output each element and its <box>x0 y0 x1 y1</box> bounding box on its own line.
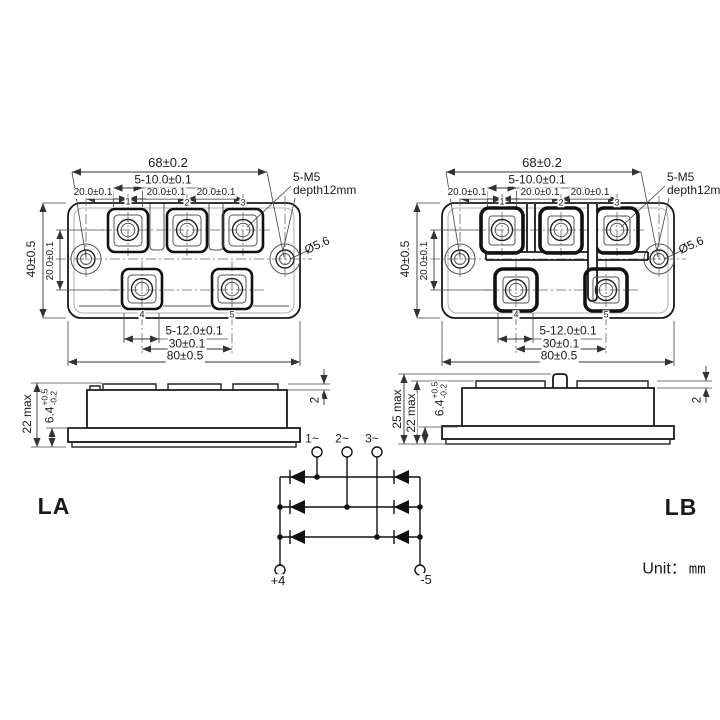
unit-prefix: Unit： <box>642 562 686 579</box>
circuit-ac3-label: 3~ <box>364 433 380 446</box>
circuit-ac1-label: 1~ <box>304 433 320 446</box>
lb-side-height-max: 22 max <box>405 392 417 433</box>
la-side-view <box>31 369 330 447</box>
variant-label-lb: LB <box>664 495 699 519</box>
lb-terminal-number-5: 5 <box>602 310 609 319</box>
circuit-ac2-label: 2~ <box>334 433 350 446</box>
lb-terminal-number-3: 3 <box>613 198 620 207</box>
lb-base-tol-minus: -0.2 <box>439 382 448 399</box>
lb-dim-bottom-terminal-width: 5-12.0±0.1 <box>538 325 597 338</box>
variant-label-la: LA <box>37 494 72 518</box>
la-dim-row-pitch: 20.0±0.1 <box>46 241 56 282</box>
module-outline-drawing: 68±0.2 5-10.0±0.1 20.0±0.1 20.0±0.1 20.0… <box>0 0 720 720</box>
lb-terminal-number-1: 1 <box>498 197 505 206</box>
lb-dim-height-overall: 40±0.5 <box>399 240 411 279</box>
lb-dim-hole-span: 68±0.2 <box>521 156 563 170</box>
lb-terminal-number-2: 2 <box>557 198 564 207</box>
la-dim-terminal-hole-width: 5-10.0±0.1 <box>133 174 192 187</box>
lb-dim-width-overall: 80±0.5 <box>540 350 579 363</box>
la-base-value: 6.4 <box>43 407 55 424</box>
lb-base-value: 6.4 <box>433 400 445 417</box>
la-side-base-thickness: 6.4 +0.5 -0.2 <box>41 388 58 424</box>
lb-thread-depth: depth12mm <box>667 184 720 198</box>
unit-label: Unit： mm <box>641 562 706 579</box>
la-terminal-number-4: 4 <box>138 310 145 319</box>
lb-dim-terminal-hole-width: 5-10.0±0.1 <box>507 174 566 187</box>
drawing-linework <box>0 0 720 720</box>
unit-value: mm <box>689 563 706 578</box>
lb-side-overall-height-max: 25 max <box>391 388 403 429</box>
la-side-height-max: 22 max <box>21 393 33 434</box>
ac1-terminal-circle <box>312 447 322 457</box>
la-dim-hole-span: 68±0.2 <box>147 156 189 170</box>
lb-side-terminal-step: 2 <box>692 396 704 404</box>
circuit-dc-minus-label: -5 <box>419 573 433 587</box>
la-terminal-number-1: 1 <box>124 197 131 206</box>
la-dim-pitch-mid: 20.0±0.1 <box>146 188 187 199</box>
la-dim-width-overall: 80±0.5 <box>166 350 205 363</box>
circuit-dc-plus-label: +4 <box>270 574 287 588</box>
ac2-terminal-circle <box>342 447 352 457</box>
circuit-diagram <box>275 447 425 575</box>
lb-dim-pitch-left: 20.0±0.1 <box>447 188 488 199</box>
la-base-tol-minus: -0.2 <box>49 389 58 406</box>
la-side-terminal-step: 2 <box>310 396 322 404</box>
la-terminal-number-3: 3 <box>239 198 246 207</box>
lb-dim-pitch-mid: 20.0±0.1 <box>520 188 561 199</box>
lb-terminal-number-4: 4 <box>512 310 519 319</box>
la-terminal-number-5: 5 <box>228 310 235 319</box>
lb-side-base-thickness: 6.4 +0.5 -0.2 <box>431 381 448 417</box>
lb-dim-pitch-right: 20.0±0.1 <box>570 188 611 199</box>
la-dim-pitch-right: 20.0±0.1 <box>196 188 237 199</box>
la-dim-height-overall: 40±0.5 <box>25 240 37 279</box>
la-dim-pitch-left: 20.0±0.1 <box>73 188 114 199</box>
la-thread-depth: depth12mm <box>293 184 356 198</box>
lb-dim-row-pitch: 20.0±0.1 <box>420 241 430 282</box>
la-terminal-number-2: 2 <box>183 198 190 207</box>
la-dim-bottom-terminal-width: 5-12.0±0.1 <box>164 325 223 338</box>
ac3-terminal-circle <box>372 447 382 457</box>
